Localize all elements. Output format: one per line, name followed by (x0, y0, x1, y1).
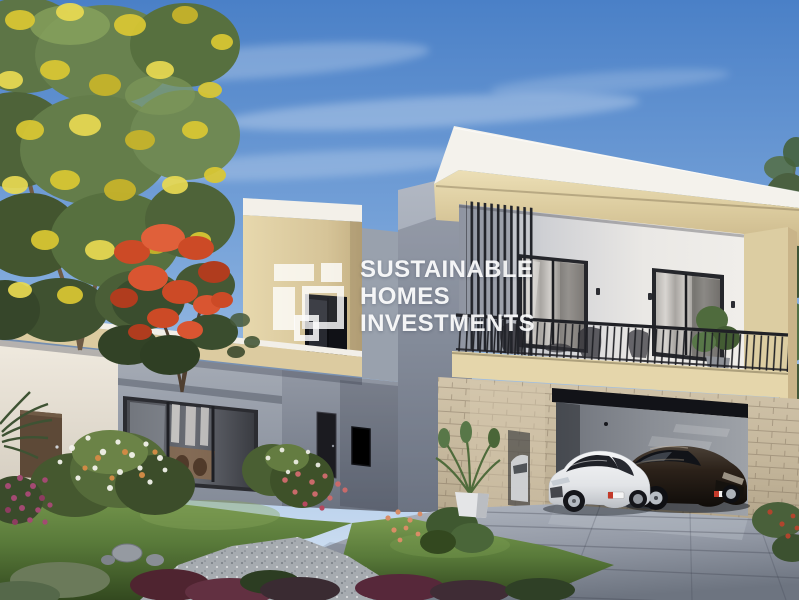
scene-art (0, 0, 799, 600)
villa-exterior-photo: SUSTAINABLE HOMES INVESTMENTS (0, 0, 799, 600)
canopy-box (243, 198, 362, 362)
entrance-window (352, 427, 370, 466)
